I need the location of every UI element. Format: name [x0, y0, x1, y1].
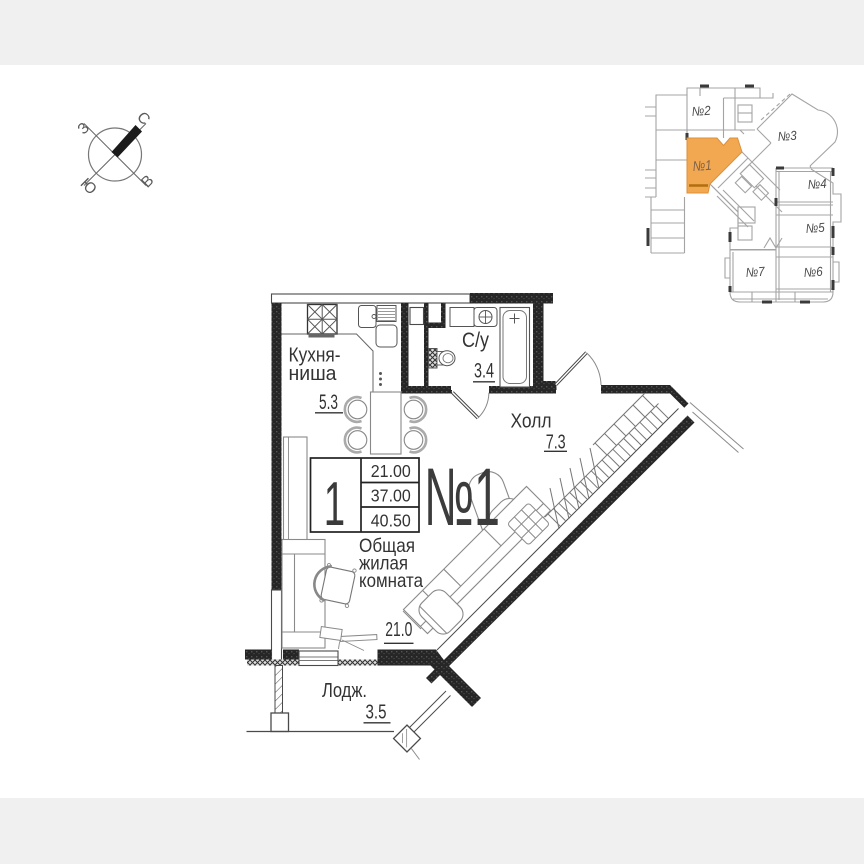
svg-text:3.5: 3.5: [366, 702, 387, 724]
svg-text:комната: комната: [359, 570, 423, 592]
svg-text:37.00: 37.00: [371, 486, 411, 506]
svg-text:3.4: 3.4: [474, 360, 494, 383]
svg-text:Лодж.: Лодж.: [322, 680, 367, 702]
svg-text:7.3: 7.3: [546, 432, 566, 454]
svg-text:№1: №1: [692, 157, 712, 174]
svg-text:№5: №5: [805, 220, 826, 236]
svg-text:Холл: Холл: [511, 411, 552, 433]
svg-text:№1: №1: [424, 452, 500, 543]
svg-text:С/у: С/у: [462, 329, 489, 352]
svg-text:№7: №7: [745, 264, 766, 280]
svg-text:№4: №4: [807, 176, 827, 192]
svg-text:21.00: 21.00: [371, 461, 411, 481]
svg-text:40.50: 40.50: [371, 511, 411, 531]
svg-text:ниша: ниша: [289, 362, 338, 385]
svg-text:1: 1: [324, 469, 345, 539]
svg-text:5.3: 5.3: [319, 391, 338, 414]
svg-text:21.0: 21.0: [385, 619, 412, 641]
svg-text:№6: №6: [803, 264, 824, 280]
svg-text:№2: №2: [691, 103, 712, 119]
svg-text:№3: №3: [777, 128, 798, 144]
